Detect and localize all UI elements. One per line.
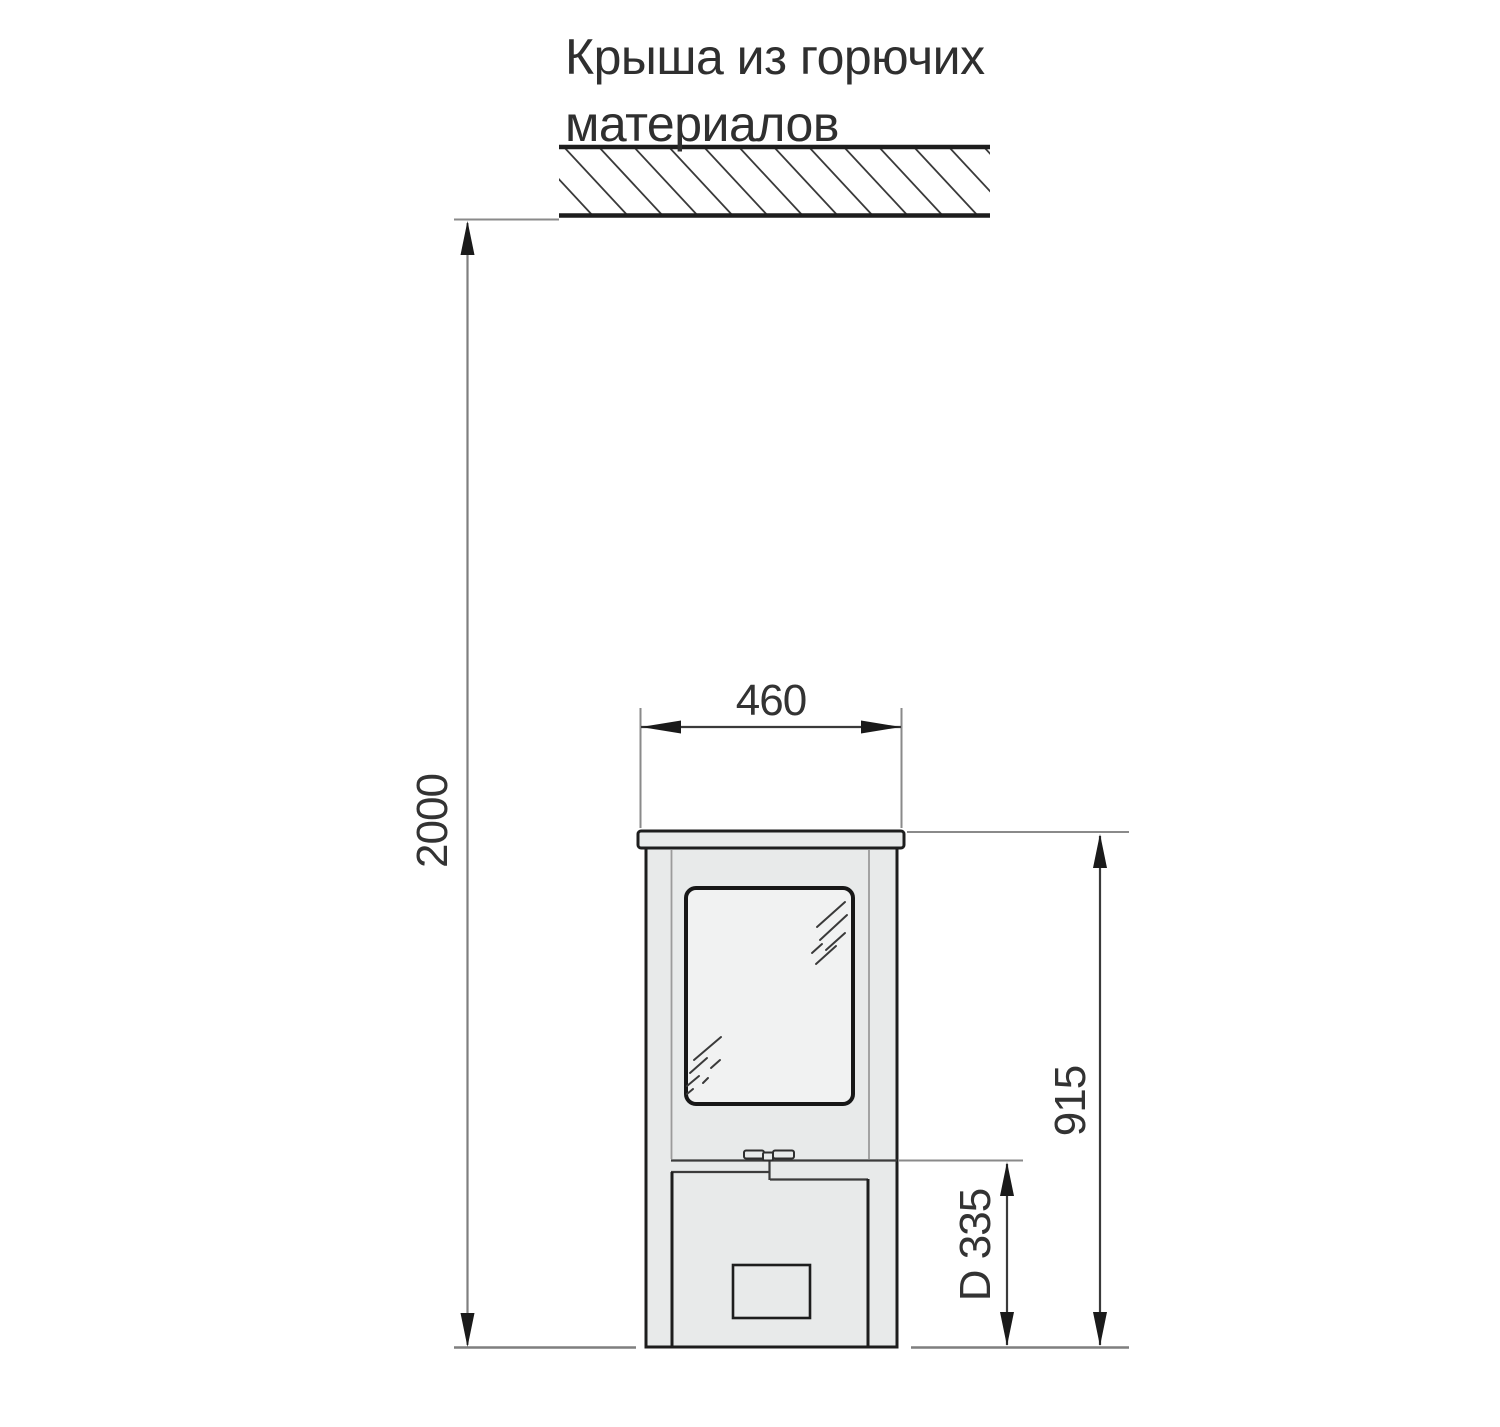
stove-front-view	[638, 831, 904, 1347]
dimension-label-clearance: 2000	[408, 774, 458, 868]
arrow-down-2000	[461, 1313, 475, 1347]
dimension-label-flue-height: D 335	[951, 1189, 1001, 1301]
stove-top-plate	[638, 831, 904, 848]
stove-glass-door	[686, 888, 853, 1104]
roof-material-caption: Крыша из горючих материалов	[565, 24, 985, 158]
dimension-2000	[454, 220, 559, 1348]
dimension-460	[641, 708, 902, 828]
arrow-down-915	[1093, 1312, 1107, 1346]
dimension-label-width: 460	[640, 676, 902, 726]
arrow-up-2000	[461, 221, 475, 255]
roof-caption-line1: Крыша из горючих	[565, 24, 985, 91]
roof-caption-line2: материалов	[565, 91, 985, 158]
arrow-up-915	[1093, 834, 1107, 868]
arrow-up-d335	[1000, 1162, 1014, 1196]
technical-drawing-canvas: Крыша из горючих материалов 460 2000 915…	[0, 0, 1500, 1427]
dimension-label-height: 915	[1046, 1066, 1096, 1136]
door-handle	[744, 1151, 794, 1161]
arrow-down-d335	[1000, 1312, 1014, 1346]
